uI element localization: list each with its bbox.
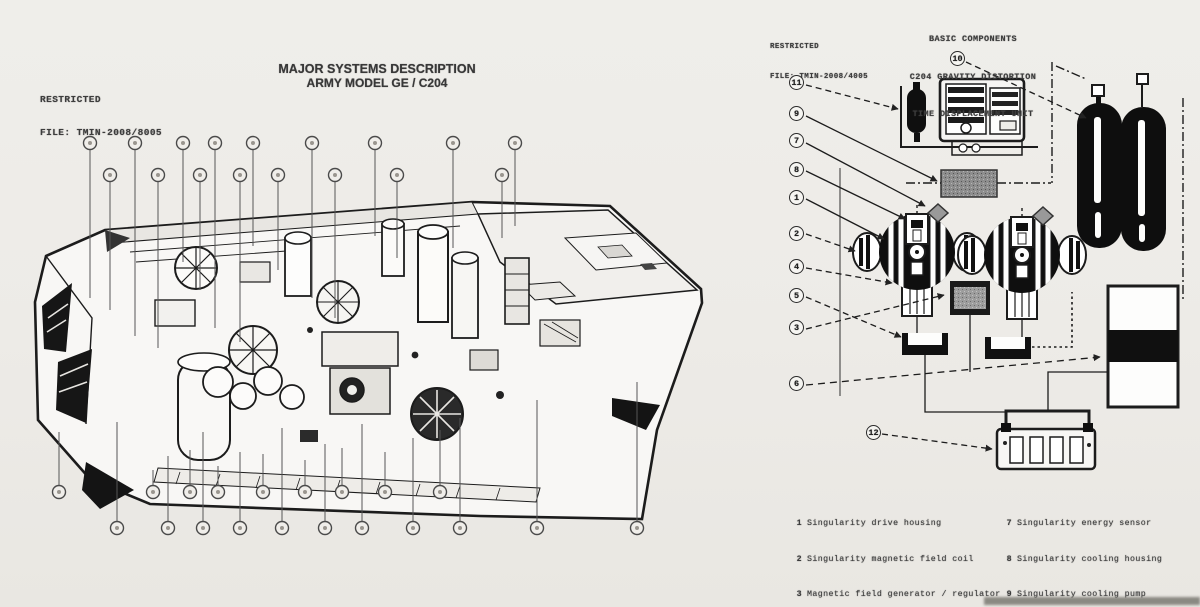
- callout-dot-digit-smudge: [373, 141, 377, 145]
- cooling-pump-box: [941, 170, 997, 197]
- component-callout-10: 10: [950, 51, 965, 66]
- legend-column-2: 7Singularity energy sensor 8Singularity …: [998, 497, 1162, 607]
- callout-dot-digit-smudge: [360, 526, 364, 530]
- callout-dot-digit-smudge: [57, 490, 61, 494]
- component-callout-9: 9: [789, 106, 804, 121]
- callout-dot-digit-smudge: [188, 490, 192, 494]
- callout-dot-digit-smudge: [238, 526, 242, 530]
- callout-dot-digit-smudge: [151, 490, 155, 494]
- callout-dot-digit-smudge: [451, 141, 455, 145]
- legend-item: 8Singularity cooling housing: [998, 551, 1162, 569]
- legend-item: 2Singularity magnetic field coil: [788, 551, 1001, 569]
- classification-label: RESTRICTED: [770, 42, 868, 52]
- callout-dot-digit-smudge: [635, 526, 639, 530]
- callout-dot-digit-smudge: [108, 173, 112, 177]
- cutaway-illustration: [35, 137, 702, 535]
- callout-dot-digit-smudge: [395, 173, 399, 177]
- components-title: BASIC COMPONENTS: [898, 33, 1048, 46]
- classification-label: RESTRICTED: [40, 94, 162, 105]
- callout-dot-digit-smudge: [513, 141, 517, 145]
- callout-dot-digit-smudge: [198, 173, 202, 177]
- legend-item: 7Singularity energy sensor: [998, 515, 1162, 533]
- legend-item: 1Singularity drive housing: [788, 515, 1001, 533]
- component-callout-1: 1: [789, 190, 804, 205]
- callout-dot-digit-smudge: [383, 490, 387, 494]
- callout-dot-digit-smudge: [323, 526, 327, 530]
- callout-dot-digit-smudge: [535, 526, 539, 530]
- left-title-block: MAJOR SYSTEMS DESCRIPTION ARMY MODEL GE …: [277, 62, 477, 91]
- callout-dot-digit-smudge: [156, 173, 160, 177]
- component-callout-2: 2: [789, 226, 804, 241]
- components-subtitle: C204 GRAVITY DISTORTION: [898, 71, 1048, 84]
- callout-dot-digit-smudge: [166, 526, 170, 530]
- callout-dot-digit-smudge: [458, 526, 462, 530]
- cooling-supply-tanks: [1077, 74, 1166, 251]
- callout-dot-digit-smudge: [303, 490, 307, 494]
- callout-dot-digit-smudge: [261, 490, 265, 494]
- file-number: FILE: TMIN-2008/4005: [770, 72, 868, 82]
- right-title-block: BASIC COMPONENTS C204 GRAVITY DISTORTION…: [898, 8, 1048, 146]
- callout-dot-digit-smudge: [280, 526, 284, 530]
- scanned-manual-page: RESTRICTED FILE: TMIN-2008/8005 MAJOR SY…: [0, 0, 1200, 607]
- component-callout-3: 3: [789, 320, 804, 335]
- callout-dot-digit-smudge: [333, 173, 337, 177]
- callout-dot-digit-smudge: [438, 490, 442, 494]
- component-callout-11: 11: [789, 75, 804, 90]
- components-subtitle-2: TIME DISPLACEMENT UNIT: [898, 108, 1048, 121]
- component-callout-7: 7: [789, 133, 804, 148]
- callout-dot-digit-smudge: [500, 173, 504, 177]
- callout-dot-digit-smudge: [115, 526, 119, 530]
- legend-column-1: 1Singularity drive housing 2Singularity …: [788, 497, 1001, 607]
- callout-dot-digit-smudge: [201, 526, 205, 530]
- callout-dot-digit-smudge: [216, 490, 220, 494]
- callout-dot-digit-smudge: [411, 526, 415, 530]
- callout-dot-digit-smudge: [251, 141, 255, 145]
- component-callout-8: 8: [789, 162, 804, 177]
- page-title: MAJOR SYSTEMS DESCRIPTION: [277, 62, 477, 76]
- scan-edge-artifact: [984, 597, 1200, 605]
- regulator-tray-1: [902, 333, 948, 355]
- legend-item: 3Magnetic field generator / regulator: [788, 586, 1001, 604]
- file-number: FILE: TMIN-2008/8005: [40, 127, 162, 138]
- field-generator-box: [950, 281, 990, 315]
- callout-dot-digit-smudge: [238, 173, 242, 177]
- component-callout-4: 4: [789, 259, 804, 274]
- right-classification-block: RESTRICTED FILE: TMIN-2008/4005: [770, 22, 868, 102]
- battery-unit: [997, 411, 1095, 469]
- callout-dot-digit-smudge: [213, 141, 217, 145]
- callout-dot-digit-smudge: [181, 141, 185, 145]
- callout-dot-digit-smudge: [310, 141, 314, 145]
- regulator-tray-2: [985, 337, 1031, 359]
- electron-generator-block: [1108, 286, 1178, 407]
- callout-dot-digit-smudge: [340, 490, 344, 494]
- page-subtitle: ARMY MODEL GE / C204: [277, 76, 477, 91]
- callout-dot-digit-smudge: [276, 173, 280, 177]
- component-callout-5: 5: [789, 288, 804, 303]
- left-classification-block: RESTRICTED FILE: TMIN-2008/8005: [40, 72, 162, 160]
- component-callout-6: 6: [789, 376, 804, 391]
- component-callout-12: 12: [866, 425, 881, 440]
